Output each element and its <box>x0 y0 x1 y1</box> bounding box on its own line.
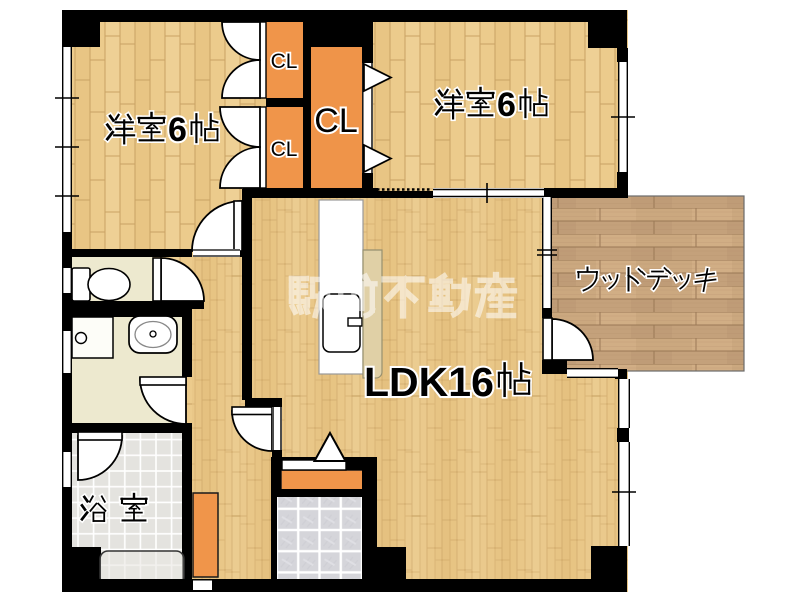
svg-text:CL: CL <box>271 50 298 73</box>
svg-text:CL: CL <box>271 138 298 161</box>
svg-text:CL: CL <box>314 102 357 140</box>
svg-text:6: 6 <box>168 111 187 149</box>
svg-text:6: 6 <box>497 86 516 124</box>
svg-text:LDK16: LDK16 <box>364 359 494 405</box>
